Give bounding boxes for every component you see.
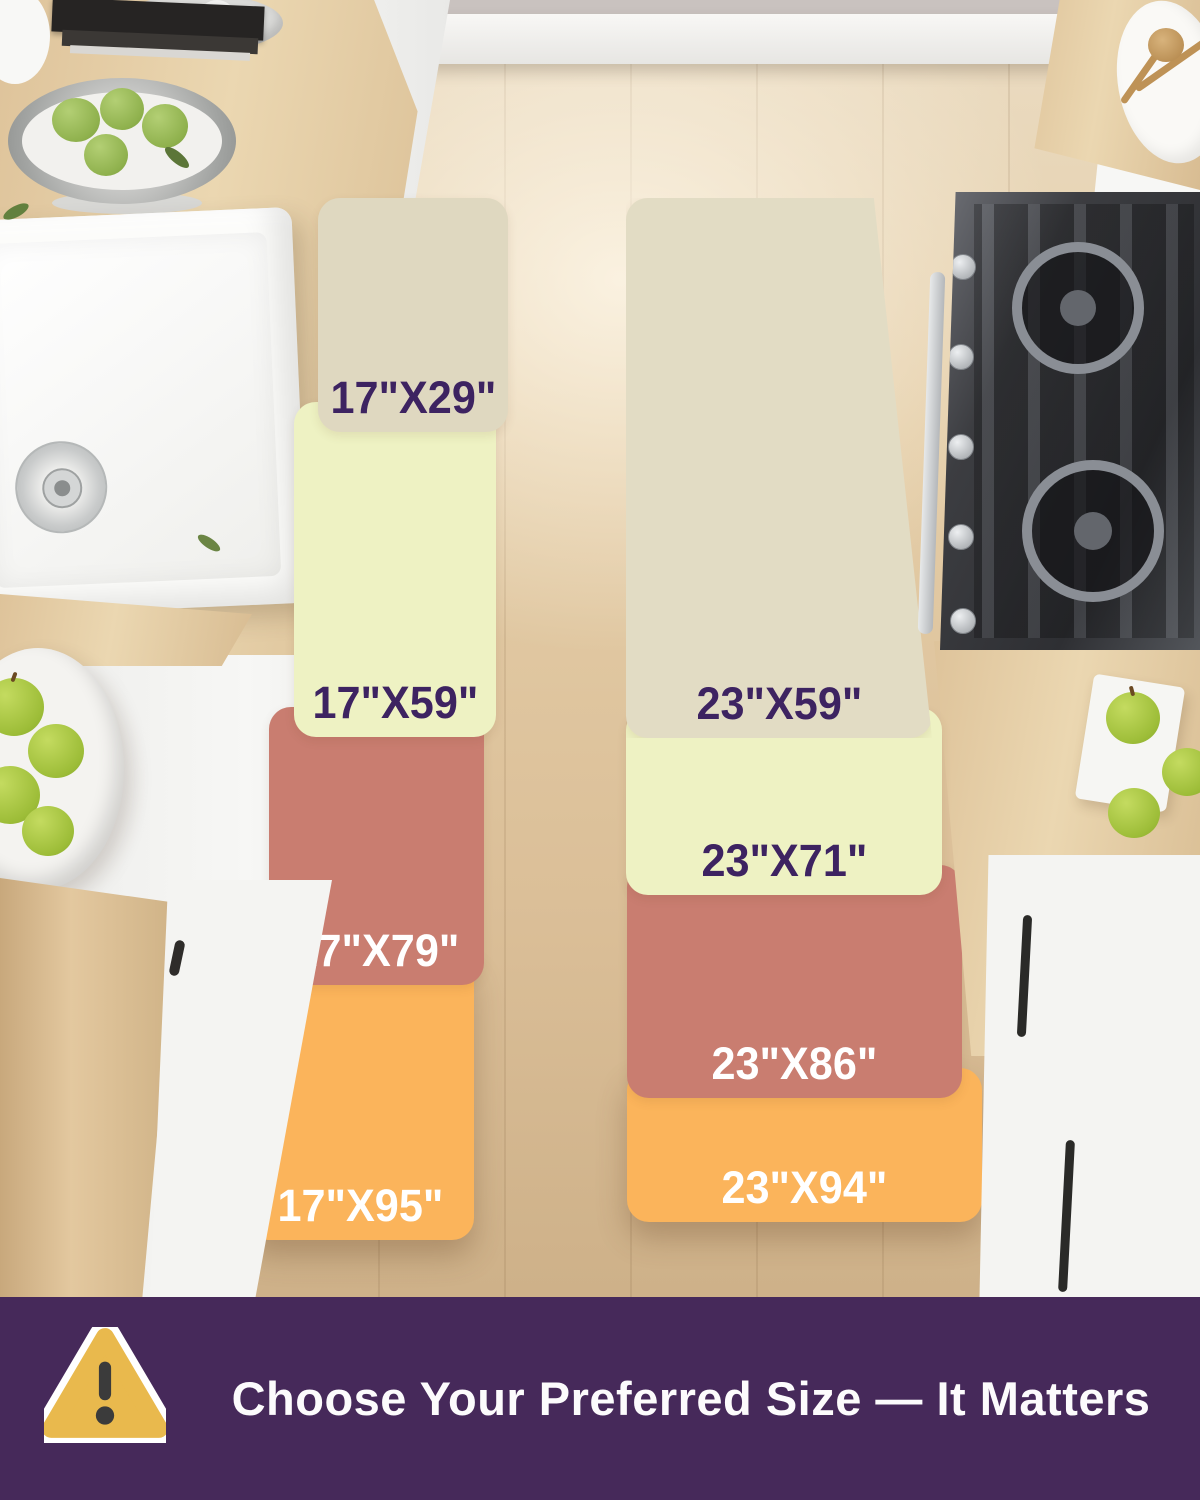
- baseboard-trim: [330, 14, 1145, 64]
- stove-knob: [950, 608, 976, 634]
- banner-text: Choose Your Preferred Size — It Matters: [196, 1297, 1186, 1500]
- stove-knob: [948, 524, 974, 550]
- size-label: 17"X29": [330, 375, 496, 420]
- apple: [1108, 788, 1160, 838]
- lime: [142, 104, 188, 148]
- stove-knob: [948, 434, 974, 460]
- size-label: 17"X59": [312, 680, 478, 725]
- exclamation-dot: [96, 1406, 114, 1424]
- lime: [100, 88, 144, 130]
- size-label: 23"X71": [701, 838, 867, 883]
- size-label: 23"X59": [696, 681, 862, 726]
- sink-basin: [0, 232, 281, 588]
- size-label: 17"X95": [277, 1183, 443, 1228]
- swatch-17x29: 17"X29": [318, 198, 508, 432]
- swatch-17x59: 17"X59": [294, 402, 496, 737]
- size-label: 23"X94": [722, 1165, 888, 1210]
- wooden-bowl: [1148, 28, 1184, 62]
- notice-banner: Choose Your Preferred Size — It Matters: [0, 1297, 1200, 1500]
- exclamation-bar: [99, 1362, 111, 1401]
- apple: [1106, 692, 1160, 744]
- stove-knob: [948, 344, 974, 370]
- gas-cooktop: [940, 192, 1200, 650]
- apple: [28, 724, 84, 778]
- warning-triangle-icon: [44, 1327, 166, 1443]
- size-label: 23"X86": [712, 1041, 878, 1086]
- apple: [22, 806, 74, 856]
- burner-cap: [1060, 290, 1096, 326]
- burner-cap: [1074, 512, 1112, 550]
- stove-knob: [950, 254, 976, 280]
- right-lower-cabinets: [975, 855, 1200, 1297]
- product-size-infographic: 17"X29" 17"X59" 17"X79" 17"X95" 23"X59" …: [0, 0, 1200, 1500]
- kitchen-sink: [0, 207, 308, 617]
- swatch-23x86: 23"X86": [627, 865, 962, 1098]
- lime: [84, 134, 128, 176]
- lime: [52, 98, 100, 142]
